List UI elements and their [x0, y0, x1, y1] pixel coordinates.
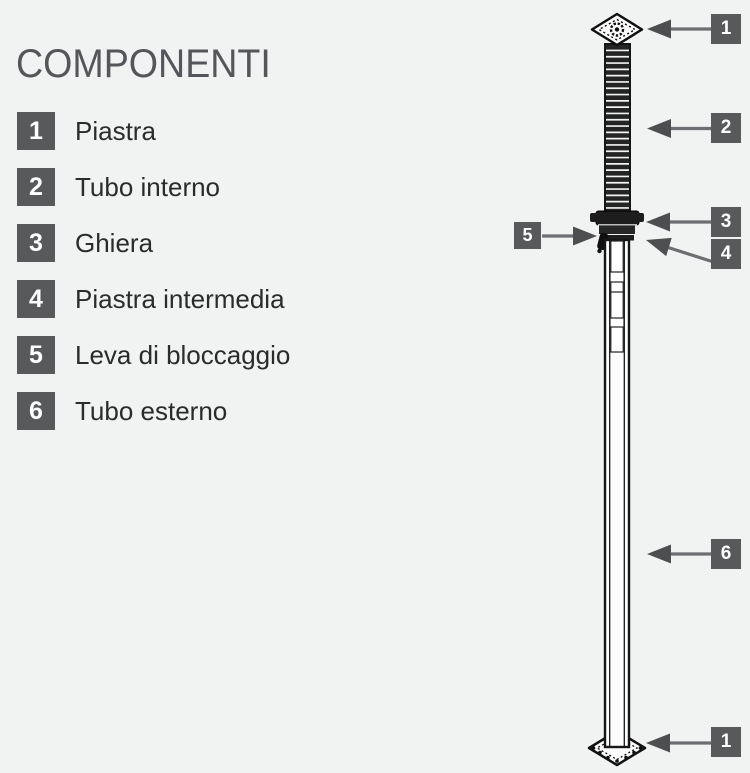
- components-infographic: COMPONENTI 1 Piastra 2 Tubo interno 3 Gh…: [0, 0, 750, 773]
- telescopic-prop-diagram: [0, 0, 750, 773]
- arrow-inner-tube: [647, 119, 712, 138]
- top-plate: [592, 14, 642, 45]
- callout-badge-inner-tube: 2: [711, 113, 741, 143]
- callout-badge-locking-lever: 5: [514, 222, 541, 249]
- arrow-top-plate: [647, 20, 712, 39]
- callout-badge-top-plate: 1: [711, 14, 741, 44]
- ghiera-collar: [590, 211, 644, 234]
- inner-tube-threaded: [605, 44, 630, 214]
- inner-tube-inside-outer: [610, 241, 624, 352]
- arrow-bottom-plate: [646, 734, 712, 753]
- callout-badge-outer-tube: 6: [711, 539, 741, 569]
- callout-badge-ghiera: 3: [711, 207, 741, 237]
- arrow-locking-lever: [542, 227, 597, 246]
- arrow-outer-tube: [647, 545, 712, 564]
- callout-badge-bottom-plate: 1: [711, 727, 741, 757]
- arrow-ghiera: [646, 213, 712, 232]
- callout-badge-intermediate-plate: 4: [711, 239, 741, 269]
- arrow-intermediate-plate: [643, 231, 712, 262]
- prop-drawing: [589, 14, 645, 765]
